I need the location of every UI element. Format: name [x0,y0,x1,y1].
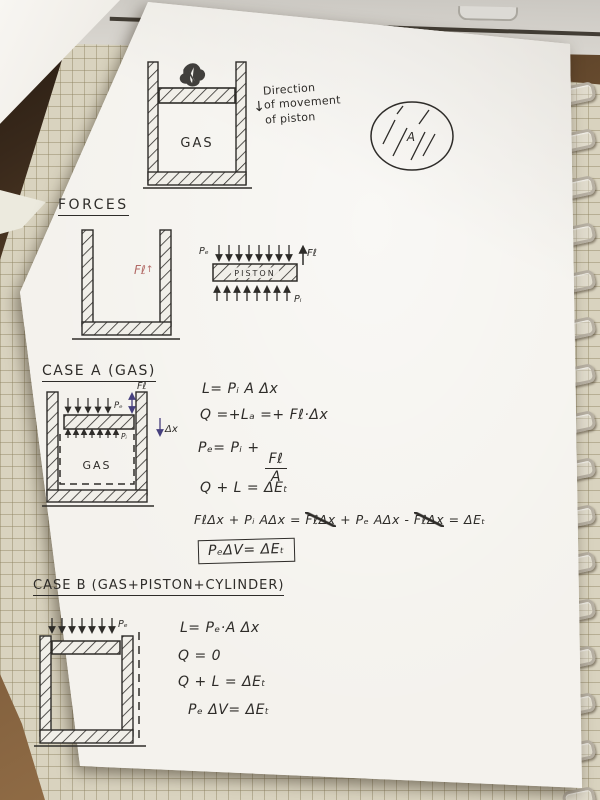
displacement-label: Δx [164,424,178,435]
external-pressure-label: Pₑ [199,246,209,257]
fraction-numerator: Fℓ [265,451,288,469]
cylinder-right-wall [236,62,246,184]
case-a-diagram: Pₑ Fℓ Pᵢ GAS Δx [44,380,179,512]
cylinder-bottom [47,490,147,502]
eq-segment: = ΔEₜ [444,512,486,527]
eq-heat-b: Q = 0 [178,648,221,664]
internal-pressure-label: Pᵢ [294,294,302,305]
cylinder-right-wall [136,392,147,495]
eq-first-law-a: Q + L = ΔEₜ [200,480,288,496]
cylinder-left-wall [47,392,58,495]
cylinder-left-wall [40,636,51,736]
cylinder-bottom [40,730,133,743]
direction-note: ↓ Direction of movement of piston [263,79,343,127]
cylinder-right-wall [160,230,171,326]
forces-heading: FORCES [58,197,129,216]
internal-pressure-arrows [68,430,116,438]
external-pressure-arrows [52,618,112,632]
piston [159,88,235,103]
friction-force-label-red: Fℓ↑ [134,263,153,277]
internal-pressure-arrows [217,287,287,301]
external-pressure-arrows [219,245,289,260]
case-b-heading: CASE B (GAS+PISTON+CYLINDER) [33,578,284,596]
cylinder-bottom [82,322,171,335]
piston-label: PISTON [234,269,275,278]
piston [52,641,120,654]
eq-segment: FℓΔx + Pᵢ AΔx = [194,512,305,527]
external-pressure-arrows [68,398,108,412]
eq-work-a: L= Pᵢ A Δx [202,381,278,397]
result-box: PₑΔV= ΔEₜ [198,538,295,565]
empty-cylinder-diagram [76,228,178,346]
eq-result-b: Pₑ ΔV= ΔEₜ [188,702,270,718]
gas-label: GAS [180,136,213,151]
friction-label-text: Fℓ [134,263,146,277]
cylinder-left-wall [82,230,93,326]
weight-scribble [180,64,204,86]
eq-segment-struck: FℓΔx [305,512,335,527]
friction-force-label: Fℓ [307,248,317,259]
external-pressure-label: Pₑ [118,619,128,630]
up-arrow-icon: ↑ [146,265,154,275]
eq-first-law-b: Q + L = ΔEₜ [178,674,266,690]
cylinder-right-wall [122,636,133,736]
eq-pressure-a: Pₑ= Pᵢ +FℓA [198,440,287,485]
cylinder-left-wall [148,62,158,184]
handwritten-content: GAS ↓ Direction of movement of piston A … [0,0,600,800]
piston-area-circle: A [367,98,457,174]
photo-of-physics-notes: GAS ↓ Direction of movement of piston A … [0,0,600,800]
eq-work-b: L= Pₑ·A Δx [180,620,260,636]
gas-label: GAS [82,459,111,472]
friction-force-label: Fℓ [137,381,146,392]
eq-boxed-result-a: PₑΔV= ΔEₜ [198,539,295,563]
eq-heat-a: Q =+Lₐ =+ Fℓ·Δx [200,407,328,423]
area-label: A [406,130,415,144]
piston [64,415,134,429]
boxed-result-text: PₑΔV= ΔEₜ [208,541,285,559]
internal-pressure-label: Pᵢ [121,432,128,441]
case-b-diagram: Pₑ [34,612,179,748]
cylinder-bottom [148,172,246,185]
gas-cylinder-diagram: GAS [146,58,251,194]
eq-pressure-lhs: Pₑ= Pᵢ + [198,440,260,456]
eq-segment: + Pₑ AΔx - [336,512,414,527]
down-arrow-icon: ↓ [253,98,266,117]
piston-free-body-diagram: Pₑ PISTON Fℓ Pᵢ [197,239,319,307]
eq-expanded-a: FℓΔx + Pᵢ AΔx = FℓΔx + Pₑ AΔx - FℓΔx = Δ… [194,512,486,527]
eq-segment-struck: FℓΔx [414,512,444,527]
external-pressure-label: Pₑ [114,401,123,411]
